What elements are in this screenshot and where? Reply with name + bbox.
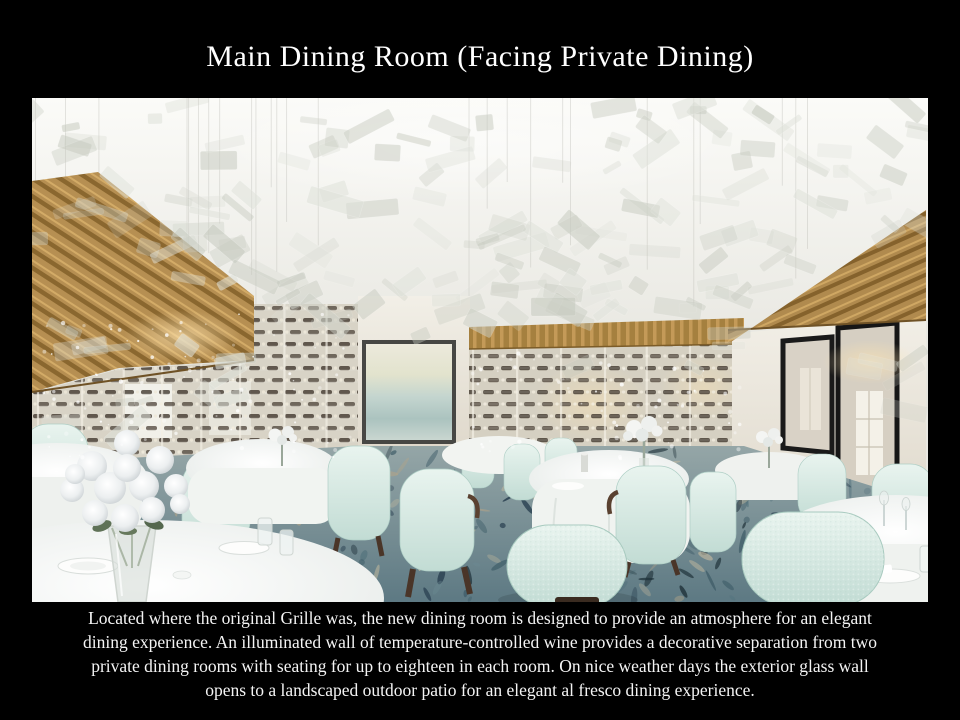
presentation-slide: Main Dining Room (Facing Private Dining) [0,0,960,720]
artwork [366,344,452,440]
dining-room-scene [32,98,928,602]
dining-room-photo [32,98,928,602]
caption: Located where the original Grille was, t… [0,606,960,702]
glass-door-left [783,337,832,453]
caption-line: private dining rooms with seating for up… [0,654,960,678]
caption-line: Located where the original Grille was, t… [0,606,960,630]
page-title: Main Dining Room (Facing Private Dining) [0,40,960,74]
caption-line: opens to a landscaped outdoor patio for … [0,678,960,702]
caption-line: dining experience. An illuminated wall o… [0,630,960,654]
